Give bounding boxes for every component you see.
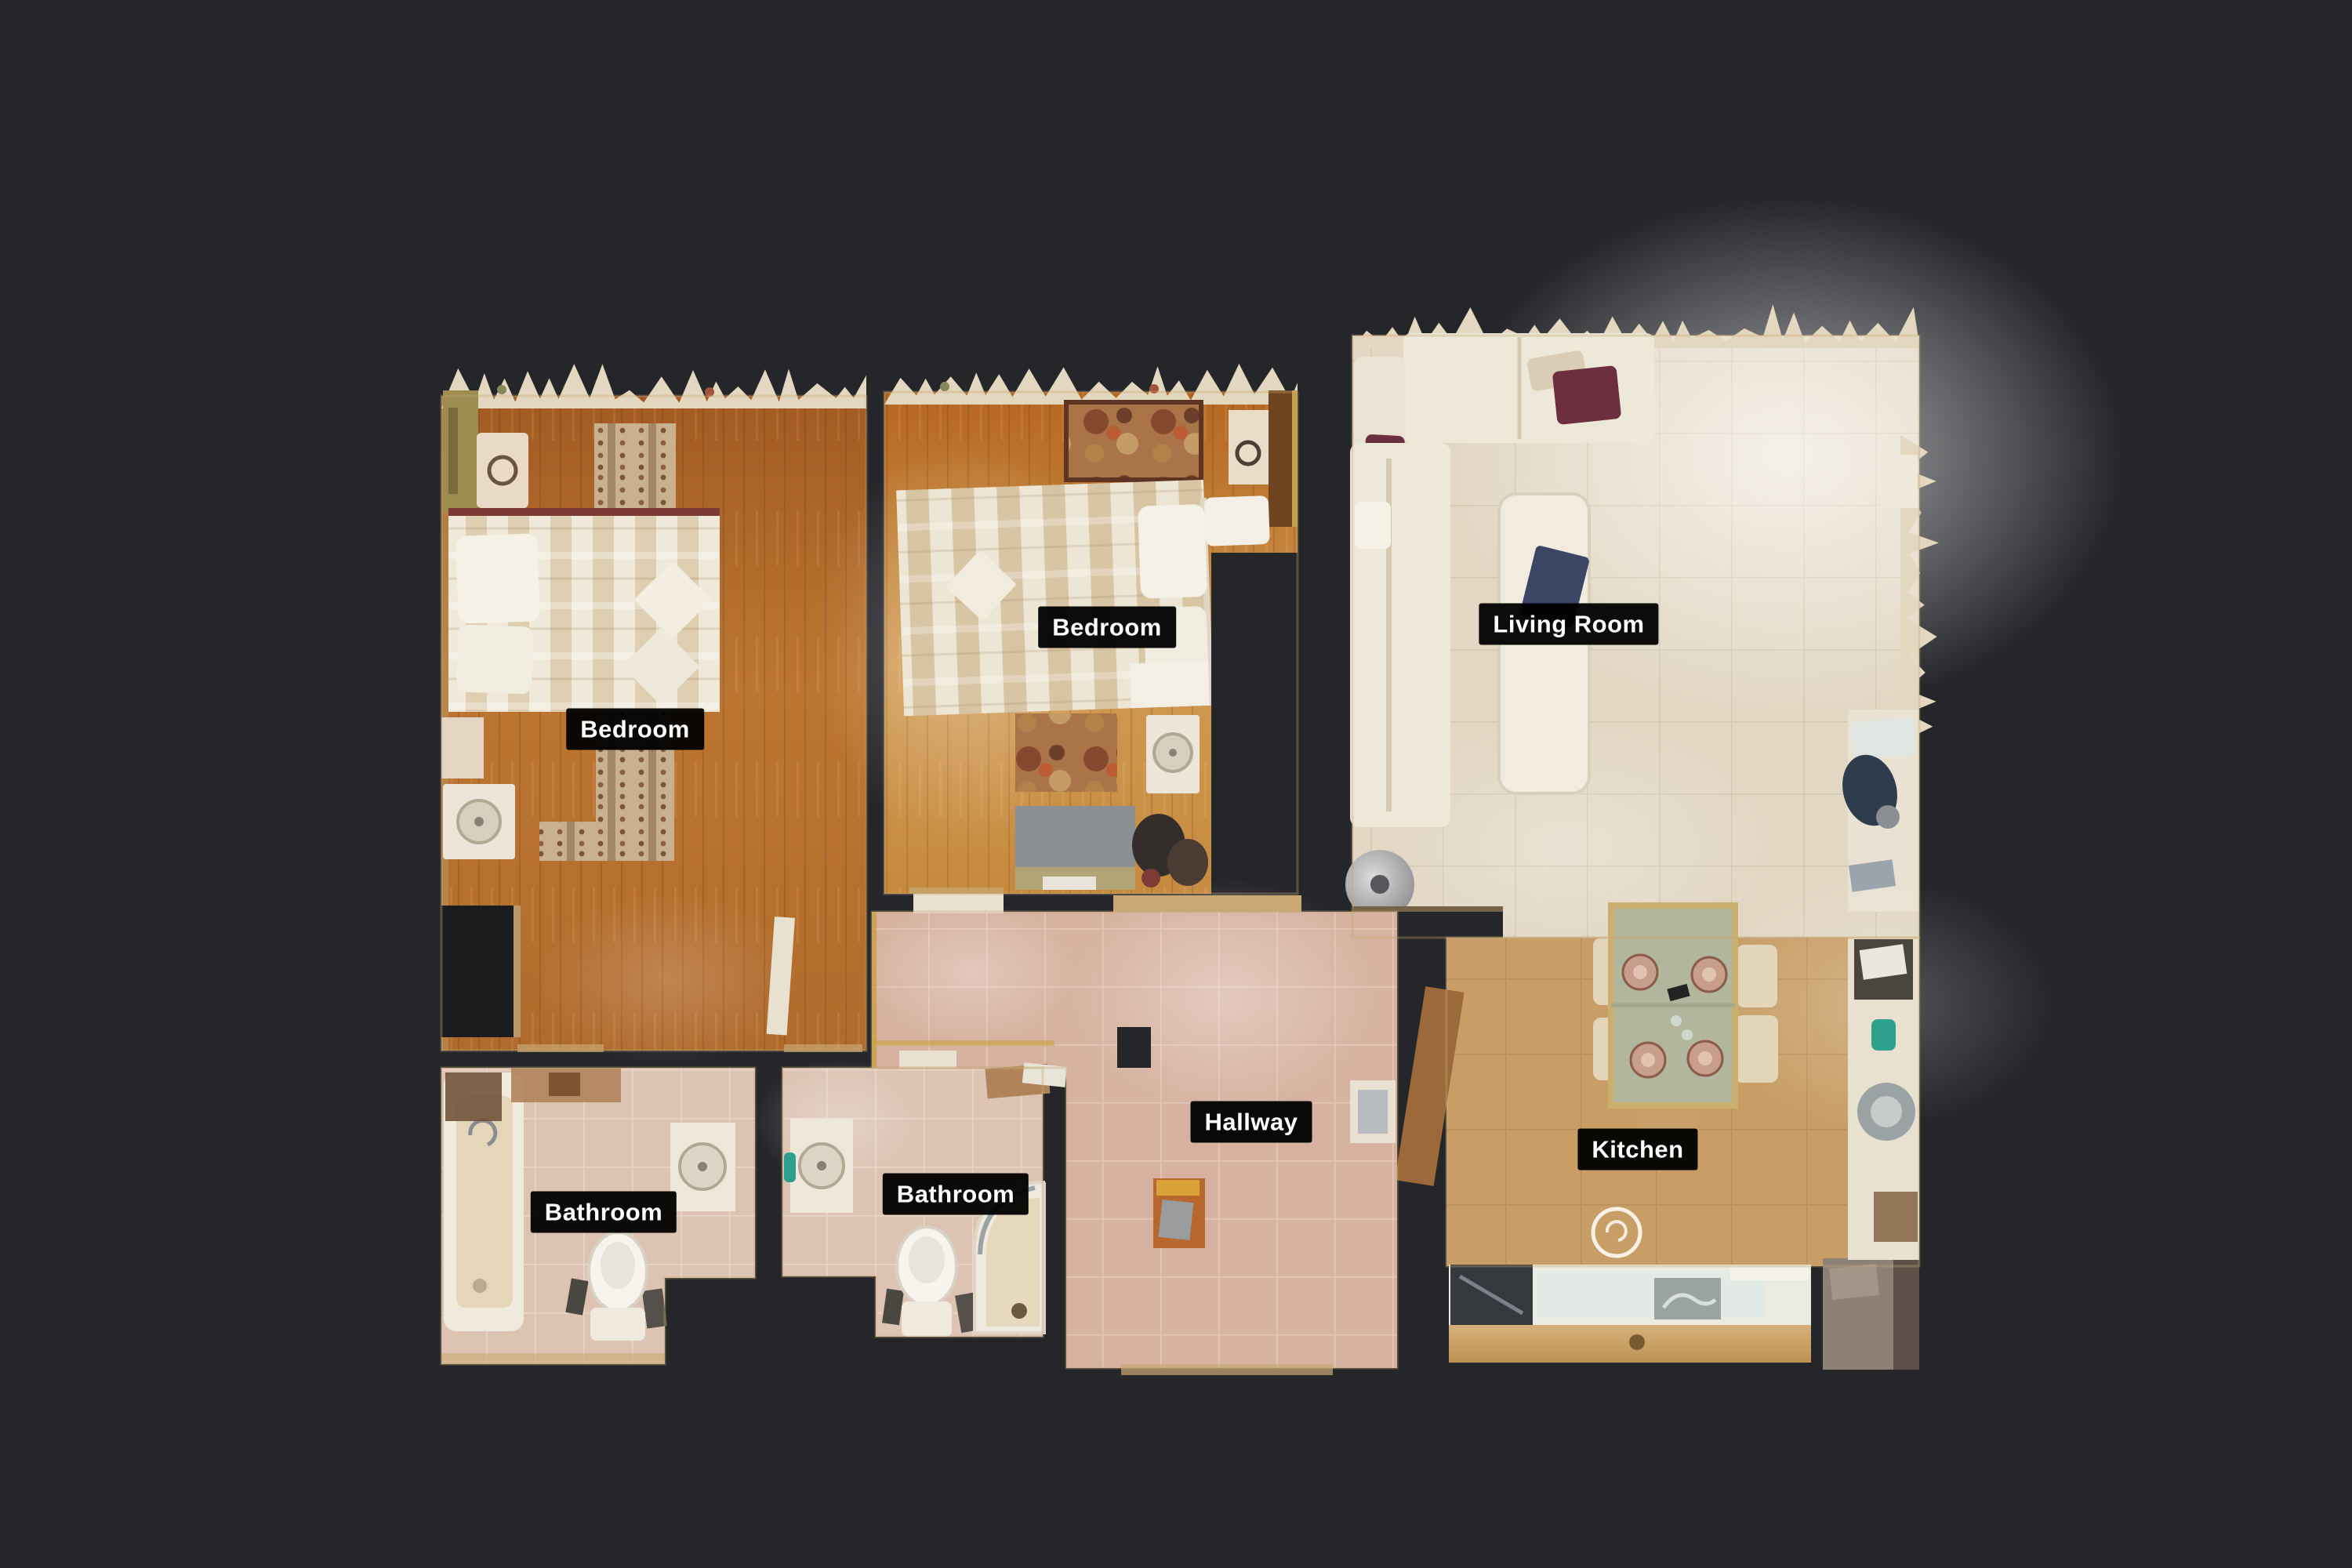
living-room-metal-disc-center — [1370, 875, 1389, 894]
hallway-wall-stub — [1117, 1027, 1151, 1068]
bathroom-1-sink — [670, 1123, 735, 1211]
bedroom-1-closet-niche — [441, 906, 515, 1037]
room-label-bathroom-1: Bathroom — [531, 1192, 677, 1233]
wall-fleck — [497, 385, 506, 394]
room-label-bathroom-2: Bathroom — [883, 1174, 1029, 1215]
floor-glare — [533, 894, 800, 1066]
kitchen-bottom-counter — [1449, 1265, 1811, 1325]
bathroom-1-bathtub — [444, 1073, 524, 1331]
room-living-room[interactable] — [1345, 196, 2125, 972]
hallway-mirror — [1350, 1080, 1396, 1143]
bedroom-2-nightstand — [1229, 410, 1269, 485]
bedroom-2-rug-top — [1066, 402, 1201, 480]
bedroom-1-cut-wall-edge — [441, 364, 866, 408]
kitchen-right-counter — [1848, 937, 1919, 1260]
bedroom-1-wardrobe-shade — [448, 408, 458, 494]
bedroom-1-closet-frame — [514, 906, 521, 1037]
kitchen-door-knob — [1629, 1334, 1645, 1350]
anteroom-door-leaf — [913, 894, 1004, 913]
wall-trim — [441, 1353, 665, 1364]
room-label-bedroom-1: Bedroom — [566, 709, 704, 750]
bedroom-1-nightstand — [477, 433, 528, 508]
floor-glare — [862, 902, 1082, 1043]
hallway-bottom-wall-trim — [1121, 1364, 1333, 1375]
room-label-bedroom-2: Bedroom — [1038, 607, 1176, 648]
threshold-trim — [872, 1040, 1054, 1046]
bathroom-2-door-leaf — [899, 1051, 956, 1068]
floorplan-canvas — [0, 0, 2352, 1568]
bedroom-1-rug-fragment — [539, 822, 599, 861]
bedroom-1-nightstand-2 — [441, 717, 484, 779]
bedroom-1-runner-rug-top — [594, 423, 676, 510]
bedroom-1-wardrobe — [443, 390, 478, 512]
room-label-living-room: Living Room — [1479, 604, 1658, 645]
living-room-wall-shelf — [1880, 455, 1918, 508]
bedroom-1-washbasin — [443, 784, 515, 859]
bedroom-2-washbasin — [1146, 715, 1200, 793]
living-room-sofa-left — [1350, 443, 1450, 827]
bedroom-2-cut-notch — [1211, 553, 1298, 894]
room-label-kitchen: Kitchen — [1577, 1129, 1697, 1171]
floor-glare — [1066, 878, 1380, 1113]
hallway-top-wall-trim — [1113, 895, 1301, 912]
bedroom-2-rug-bottom — [1015, 713, 1117, 792]
room-kitchen[interactable] — [1395, 878, 2054, 1370]
hallway-doormat — [1153, 1178, 1205, 1248]
bedroom-1-bed — [448, 508, 720, 712]
bathroom-1-shelf-items — [549, 1073, 580, 1096]
bathroom-2-sink — [784, 1119, 853, 1213]
bedroom-2-desk — [1015, 806, 1135, 890]
floorplan-viewer: Bedroom Bedroom Living Room Hallway Bath… — [0, 0, 2352, 1568]
wall-fleck — [940, 382, 949, 391]
room-label-hallway: Hallway — [1191, 1102, 1312, 1143]
living-room-sofa-top — [1403, 333, 1654, 443]
kitchen-fridge — [1823, 1258, 1919, 1370]
